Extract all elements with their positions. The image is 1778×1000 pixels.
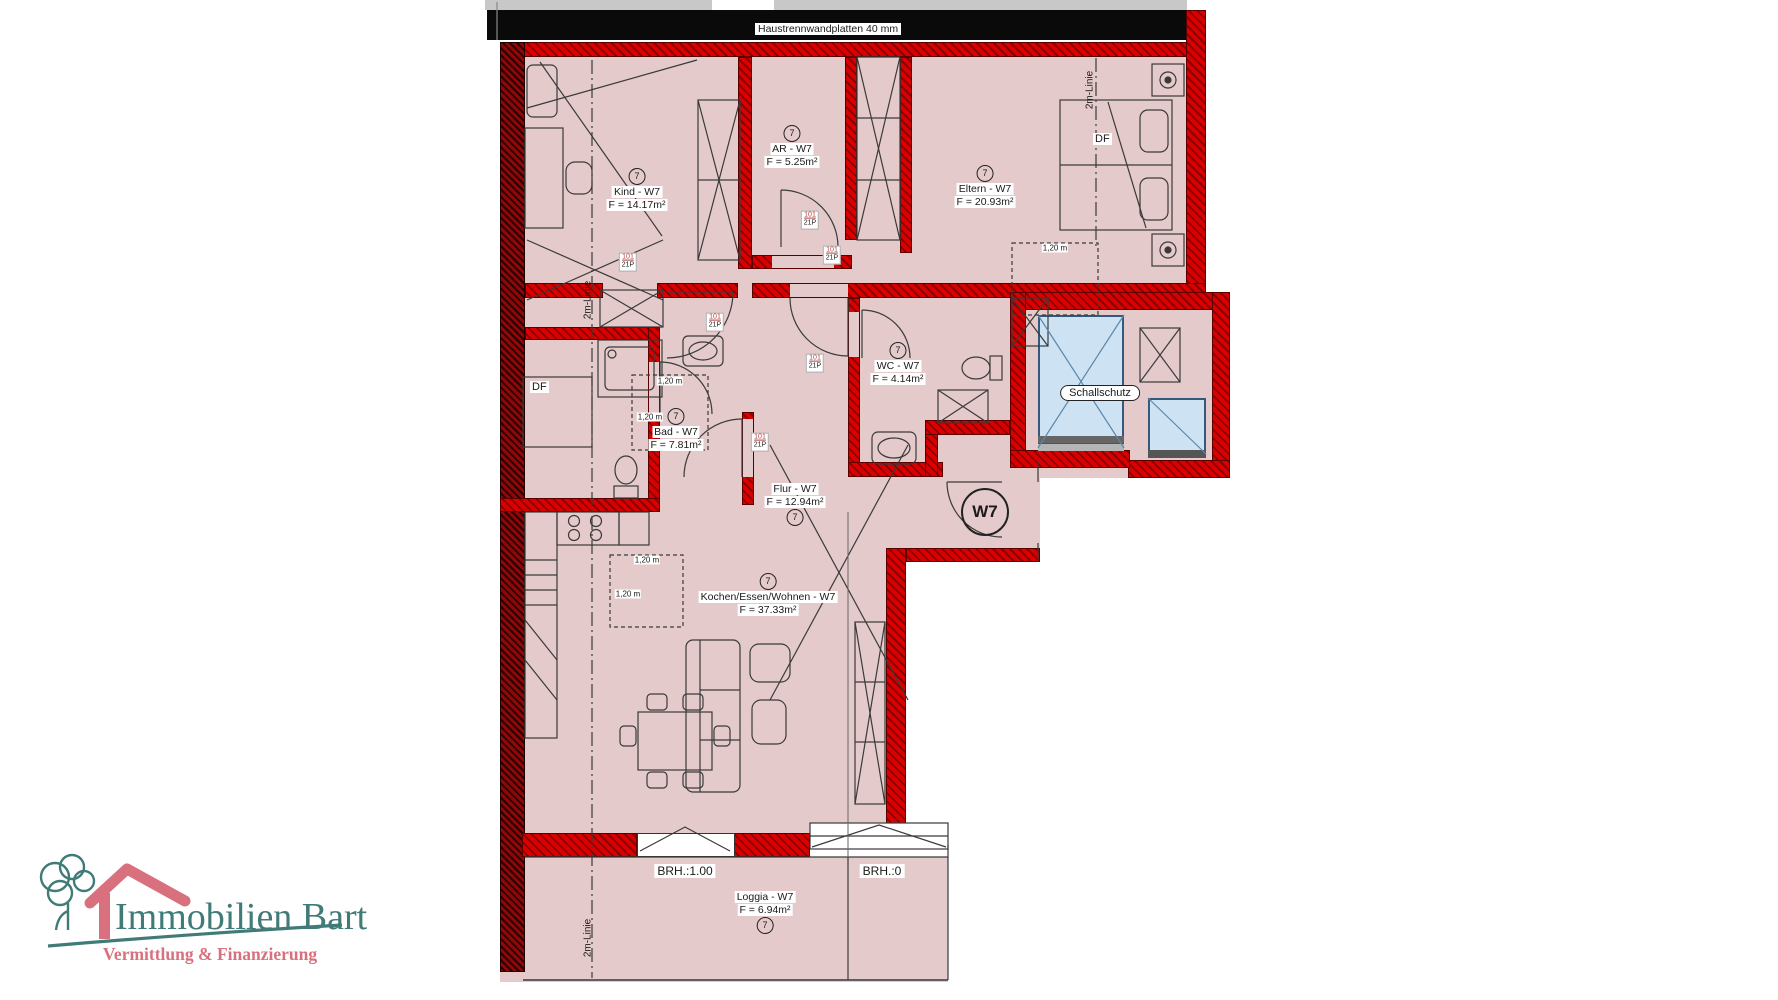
door-tag: 10121P bbox=[751, 433, 769, 452]
room-area: F = 12.94m² bbox=[765, 496, 826, 508]
room-name: WC - W7 bbox=[875, 360, 922, 372]
wall-kind-ar bbox=[738, 57, 752, 269]
glazing-sill-dark bbox=[1038, 436, 1124, 443]
room-area: F = 20.93m² bbox=[955, 196, 1016, 208]
company-logo: Immobilien Bart Vermittlung & Finanzieru… bbox=[0, 845, 420, 995]
dim-120-label: 1,20 m bbox=[1042, 244, 1068, 253]
room-number-circle: 7 bbox=[977, 165, 994, 182]
room-name: AR - W7 bbox=[770, 143, 814, 155]
room-number-circle: 7 bbox=[757, 917, 774, 934]
room-number-circle: 7 bbox=[629, 168, 646, 185]
room-label-ar: 7 AR - W7 F = 5.25m² bbox=[764, 125, 819, 168]
room-number-circle: 7 bbox=[890, 342, 907, 359]
room-label-wc: 7 WC - W7 F = 4.14m² bbox=[870, 342, 925, 385]
wall-right-upper bbox=[1186, 10, 1206, 295]
dim-120-label: 1,20 m bbox=[637, 413, 663, 422]
schallschutz-label: Schallschutz bbox=[1060, 385, 1140, 401]
glazing-sill-light bbox=[1038, 444, 1124, 451]
room-area: F = 5.25m² bbox=[764, 156, 819, 168]
door-tag: 10121P bbox=[806, 354, 824, 373]
wall-top bbox=[500, 42, 1206, 57]
room-name: Kind - W7 bbox=[612, 186, 662, 198]
wall-kind-bottom-b bbox=[657, 283, 738, 298]
glazing-sill-small bbox=[1148, 450, 1206, 458]
room-area: F = 7.81m² bbox=[648, 439, 703, 451]
room-name: Bad - W7 bbox=[652, 426, 700, 438]
tree-icon bbox=[41, 855, 94, 930]
dim-120-label: 1,20 m bbox=[634, 556, 660, 565]
df-label-bad: DF bbox=[530, 381, 549, 393]
door-tag: 10121P bbox=[619, 253, 637, 272]
logo-tagline: Vermittlung & Finanzierung bbox=[103, 944, 317, 964]
wall-eltern-left bbox=[900, 57, 912, 253]
wall-bay-left bbox=[1010, 292, 1026, 468]
room-number-circle: 7 bbox=[784, 125, 801, 142]
dim-120-label: 1,20 m bbox=[615, 590, 641, 599]
room-number-circle: 7 bbox=[668, 408, 685, 425]
gray-bar-gap bbox=[712, 0, 774, 10]
brh-label-loggia: BRH.:1.00 bbox=[654, 864, 715, 878]
door-tag: 10121P bbox=[706, 313, 724, 332]
wall-ar-right bbox=[845, 57, 857, 240]
room-name: Loggia - W7 bbox=[735, 891, 796, 903]
wall-bay-top bbox=[1010, 292, 1230, 310]
floor-plan-canvas: Haustrennwandplatten 40 mm bbox=[0, 0, 1778, 1000]
two-meter-line-label: 2m-Linie bbox=[583, 919, 594, 957]
wall-bay-bottom bbox=[1128, 460, 1230, 478]
wall-bay-inner bbox=[1010, 450, 1130, 468]
room-number-circle: 7 bbox=[787, 509, 804, 526]
wall-bad-bottom bbox=[500, 498, 660, 512]
room-fill-living bbox=[500, 512, 906, 833]
wall-entry-bottom bbox=[906, 548, 1040, 562]
room-label-flur: 7 Flur - W7 F = 12.94m² bbox=[765, 483, 826, 526]
door-tag: 10121P bbox=[823, 246, 841, 265]
df-label-eltern: DF bbox=[1093, 133, 1112, 145]
wall-living-right bbox=[886, 548, 906, 833]
wall-loggia-b bbox=[733, 833, 810, 857]
loggia-window-sill bbox=[637, 833, 735, 857]
door-opening-wc bbox=[849, 312, 859, 357]
haustrennwand-label: Haustrennwandplatten 40 mm bbox=[755, 23, 901, 35]
wall-loggia-a bbox=[522, 833, 637, 857]
room-area: F = 14.17m² bbox=[607, 199, 668, 211]
two-meter-line-label: 2m-Linie bbox=[1085, 71, 1096, 109]
room-name: Eltern - W7 bbox=[957, 183, 1014, 195]
room-area: F = 6.94m² bbox=[737, 904, 792, 916]
lift-glazing-small bbox=[1148, 398, 1206, 456]
room-name: Flur - W7 bbox=[771, 483, 818, 495]
room-name: Kochen/Essen/Wohnen - W7 bbox=[699, 591, 838, 603]
wall-bay-right bbox=[1212, 292, 1230, 478]
room-number-circle: 7 bbox=[759, 573, 776, 590]
two-meter-line-label: 2m-Linie bbox=[583, 281, 594, 319]
apartment-number-circle: W7 bbox=[961, 488, 1009, 536]
lift-glazing-large bbox=[1038, 315, 1124, 445]
door-opening-eltern bbox=[790, 284, 848, 297]
party-wall-gray-bar bbox=[485, 0, 1187, 10]
wall-bad-top bbox=[525, 327, 660, 340]
room-label-loggia: 7 Loggia - W7 F = 6.94m² bbox=[735, 891, 796, 934]
door-opening-bad bbox=[649, 362, 659, 414]
room-label-kochen: 7 Kochen/Essen/Wohnen - W7 F = 37.33m² bbox=[699, 573, 838, 616]
room-label-kind: 7 Kind - W7 F = 14.17m² bbox=[607, 168, 668, 211]
room-label-eltern: 7 Eltern - W7 F = 20.93m² bbox=[955, 165, 1016, 208]
door-tag: 10121P bbox=[801, 211, 819, 230]
wall-wc-bottom-b bbox=[925, 420, 1010, 435]
room-area: F = 37.33m² bbox=[738, 604, 799, 616]
room-area: F = 4.14m² bbox=[870, 373, 925, 385]
brh-label-window: BRH.:0 bbox=[860, 864, 905, 878]
dim-120-label: 1,20 m bbox=[657, 377, 683, 386]
